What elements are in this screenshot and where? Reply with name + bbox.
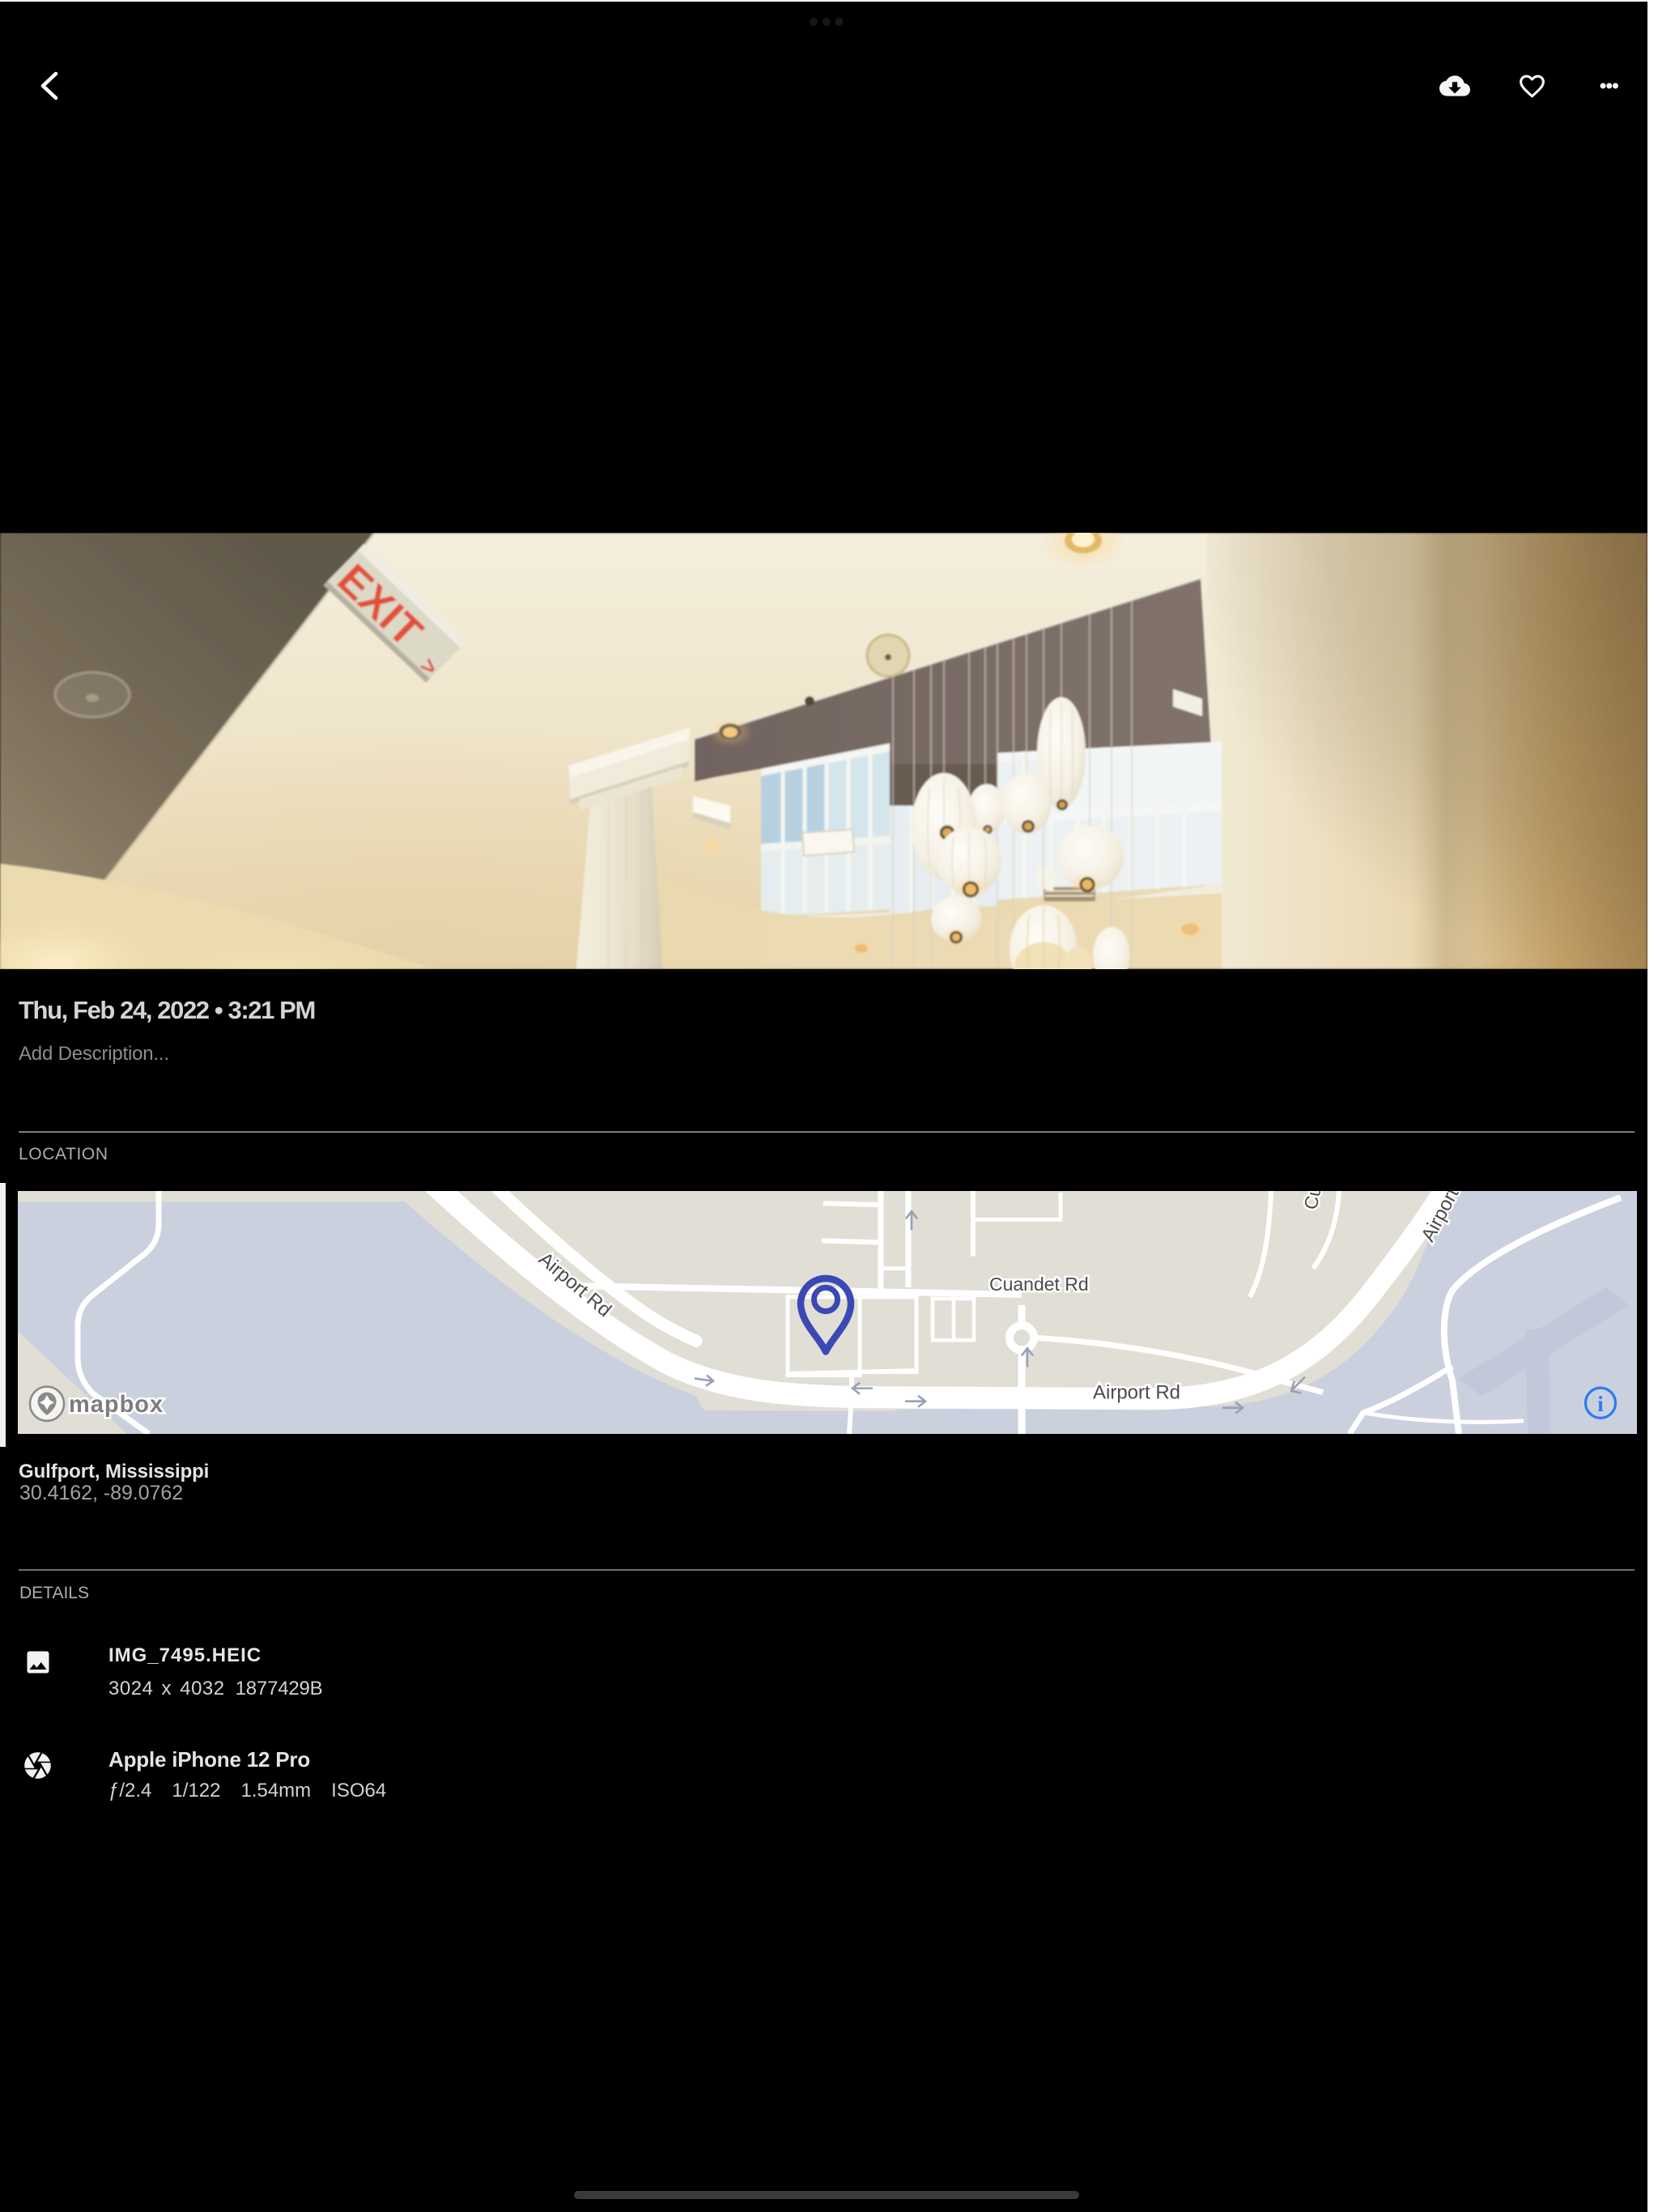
svg-text:Airport Rd: Airport Rd (1093, 1382, 1180, 1404)
svg-text:Cuandet Rd: Cuandet Rd (989, 1274, 1089, 1295)
svg-text:mapbox: mapbox (69, 1392, 164, 1418)
svg-text:i: i (1597, 1392, 1604, 1416)
